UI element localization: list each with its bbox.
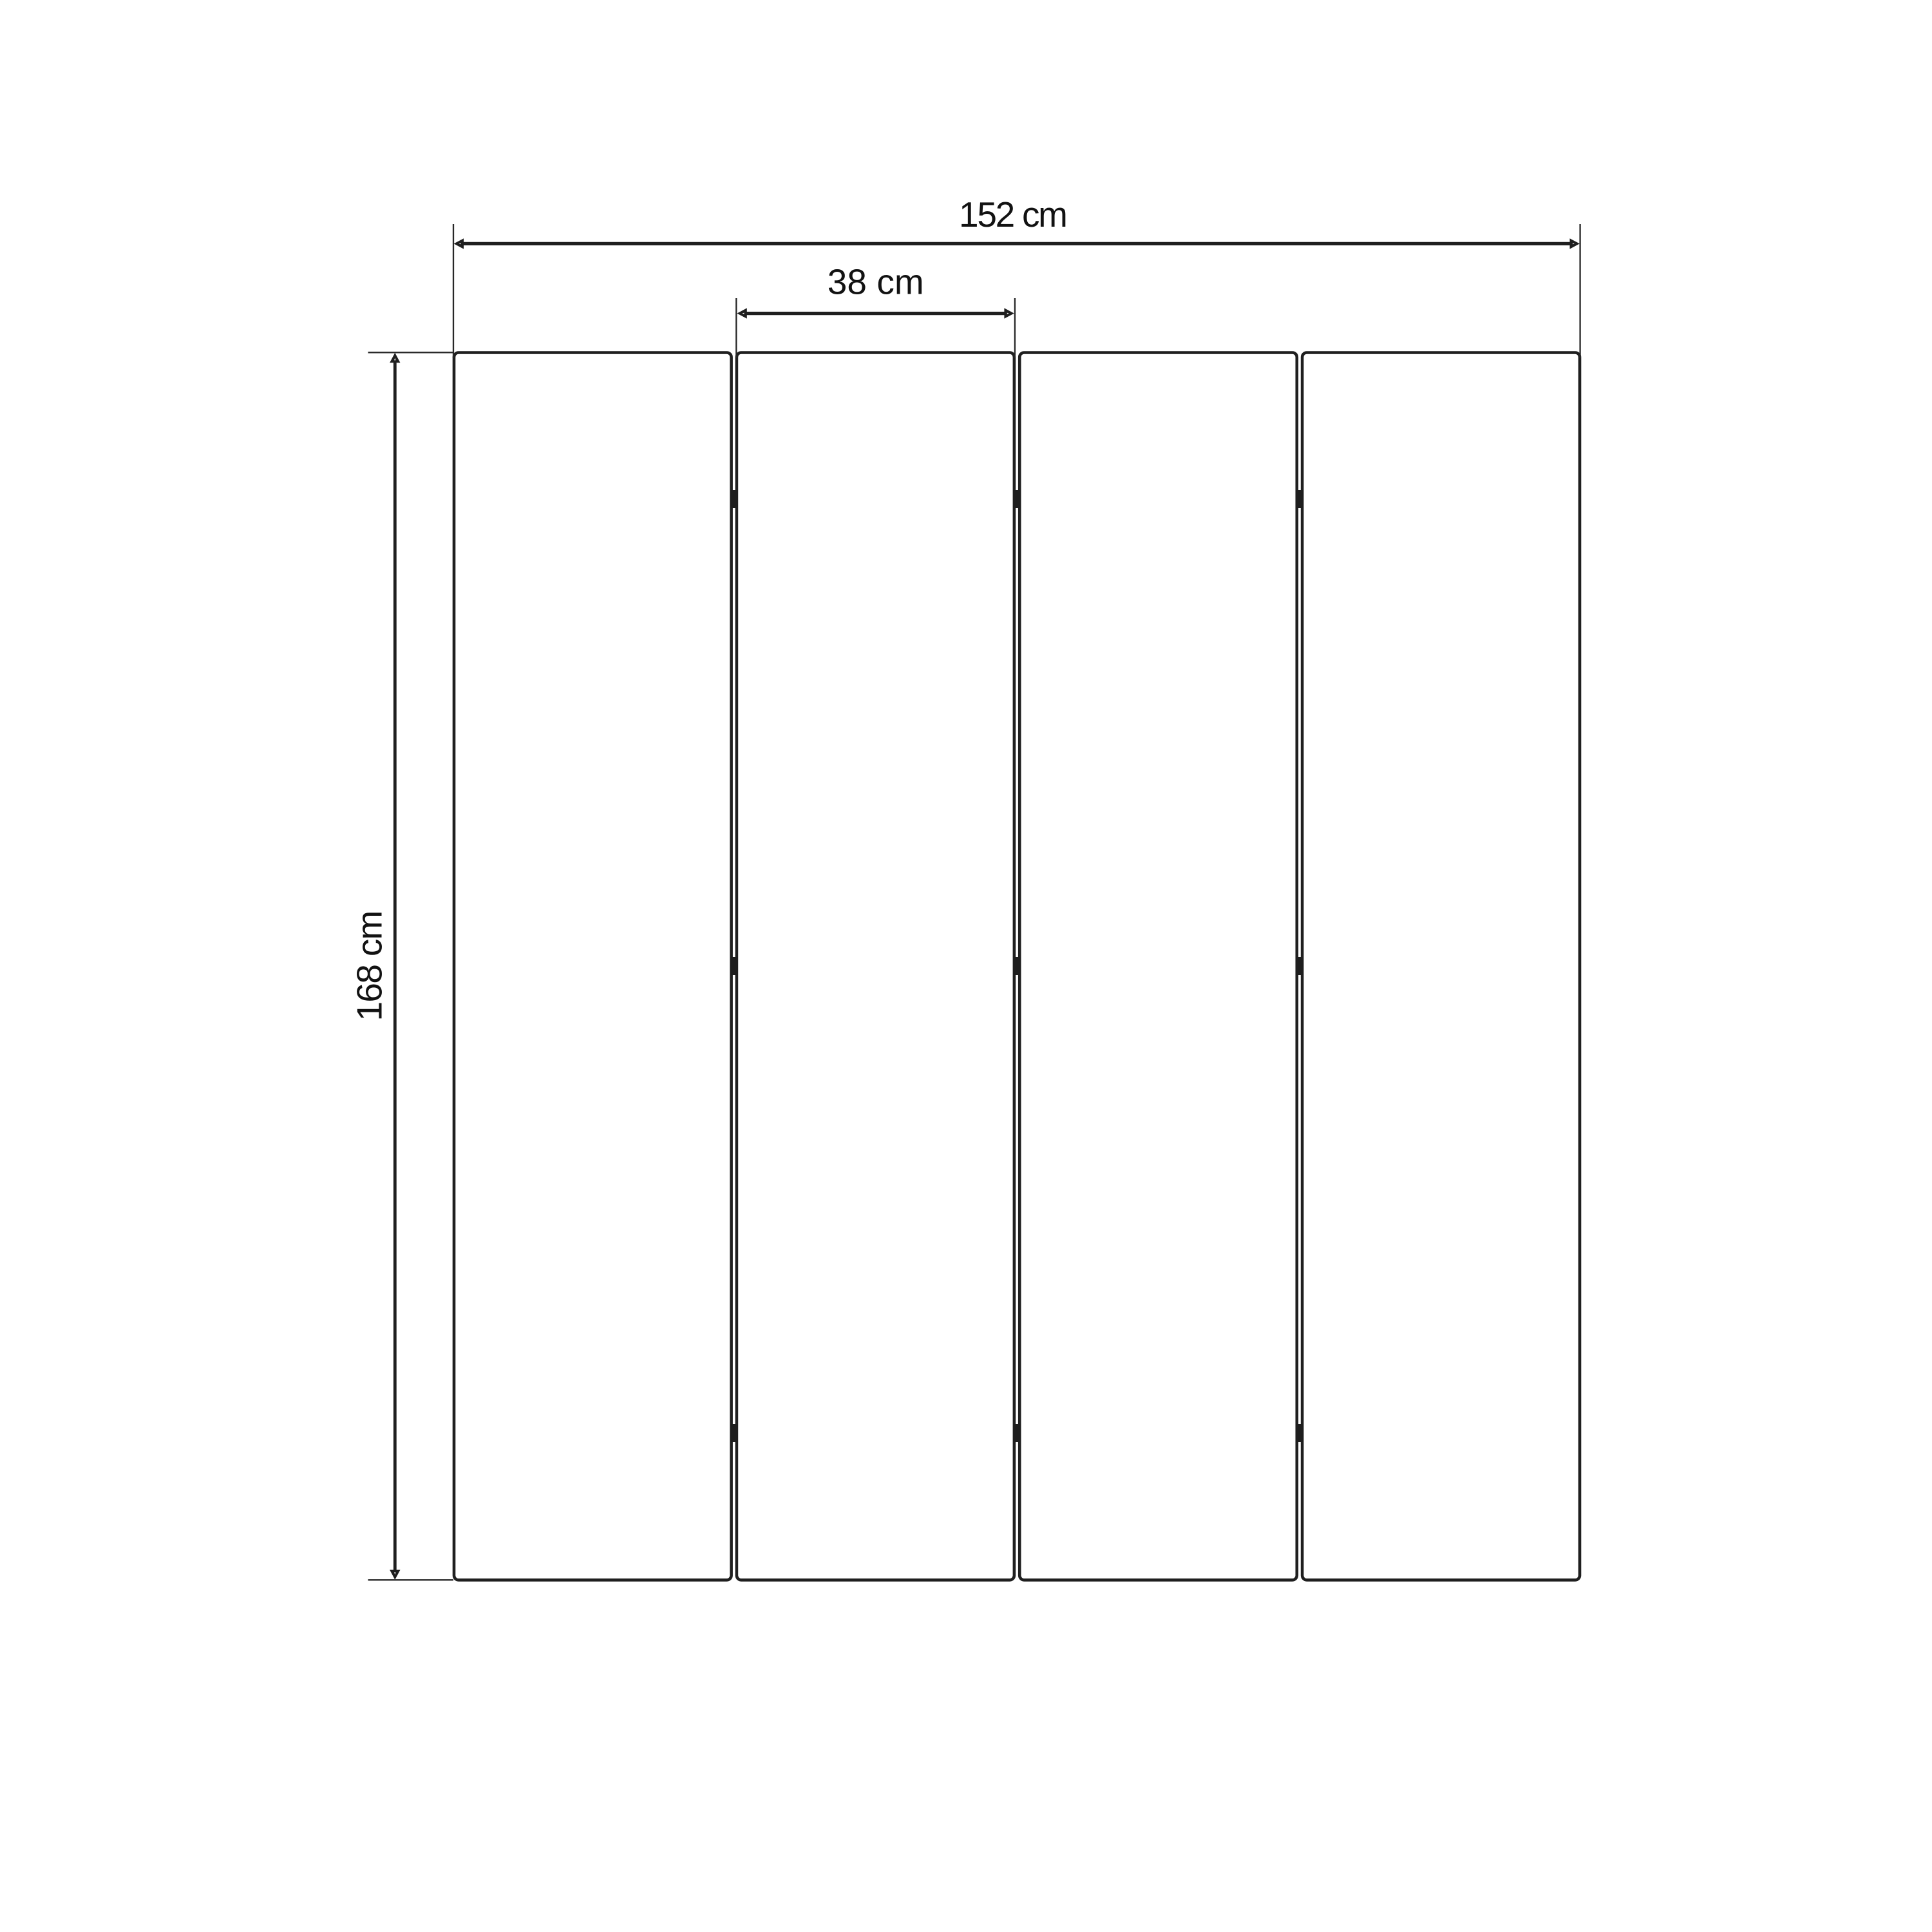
svg-text:168 cm: 168 cm [349,911,389,1021]
svg-text:38 cm: 38 cm [828,261,924,301]
svg-text:152 cm: 152 cm [959,194,1068,234]
